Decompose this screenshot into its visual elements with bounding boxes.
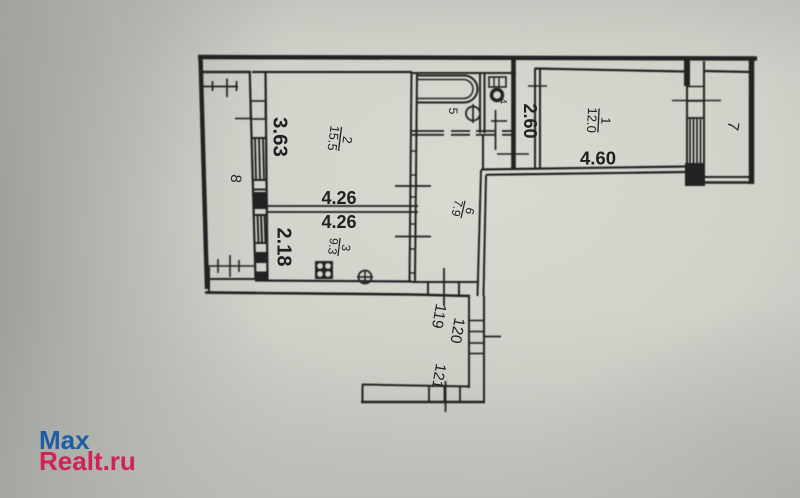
svg-text:1: 1: [598, 117, 613, 125]
svg-text:4.26: 4.26: [321, 212, 356, 232]
svg-text:4.26: 4.26: [321, 188, 356, 208]
svg-text:2.60: 2.60: [520, 103, 540, 138]
svg-text:4.60: 4.60: [580, 148, 616, 169]
svg-text:5: 5: [446, 108, 460, 115]
svg-text:4: 4: [497, 98, 508, 104]
svg-text:Realt.ru: Realt.ru: [39, 446, 136, 476]
svg-text:2.18: 2.18: [273, 228, 295, 267]
svg-text:8: 8: [227, 174, 245, 184]
svg-text:3.63: 3.63: [269, 117, 292, 157]
